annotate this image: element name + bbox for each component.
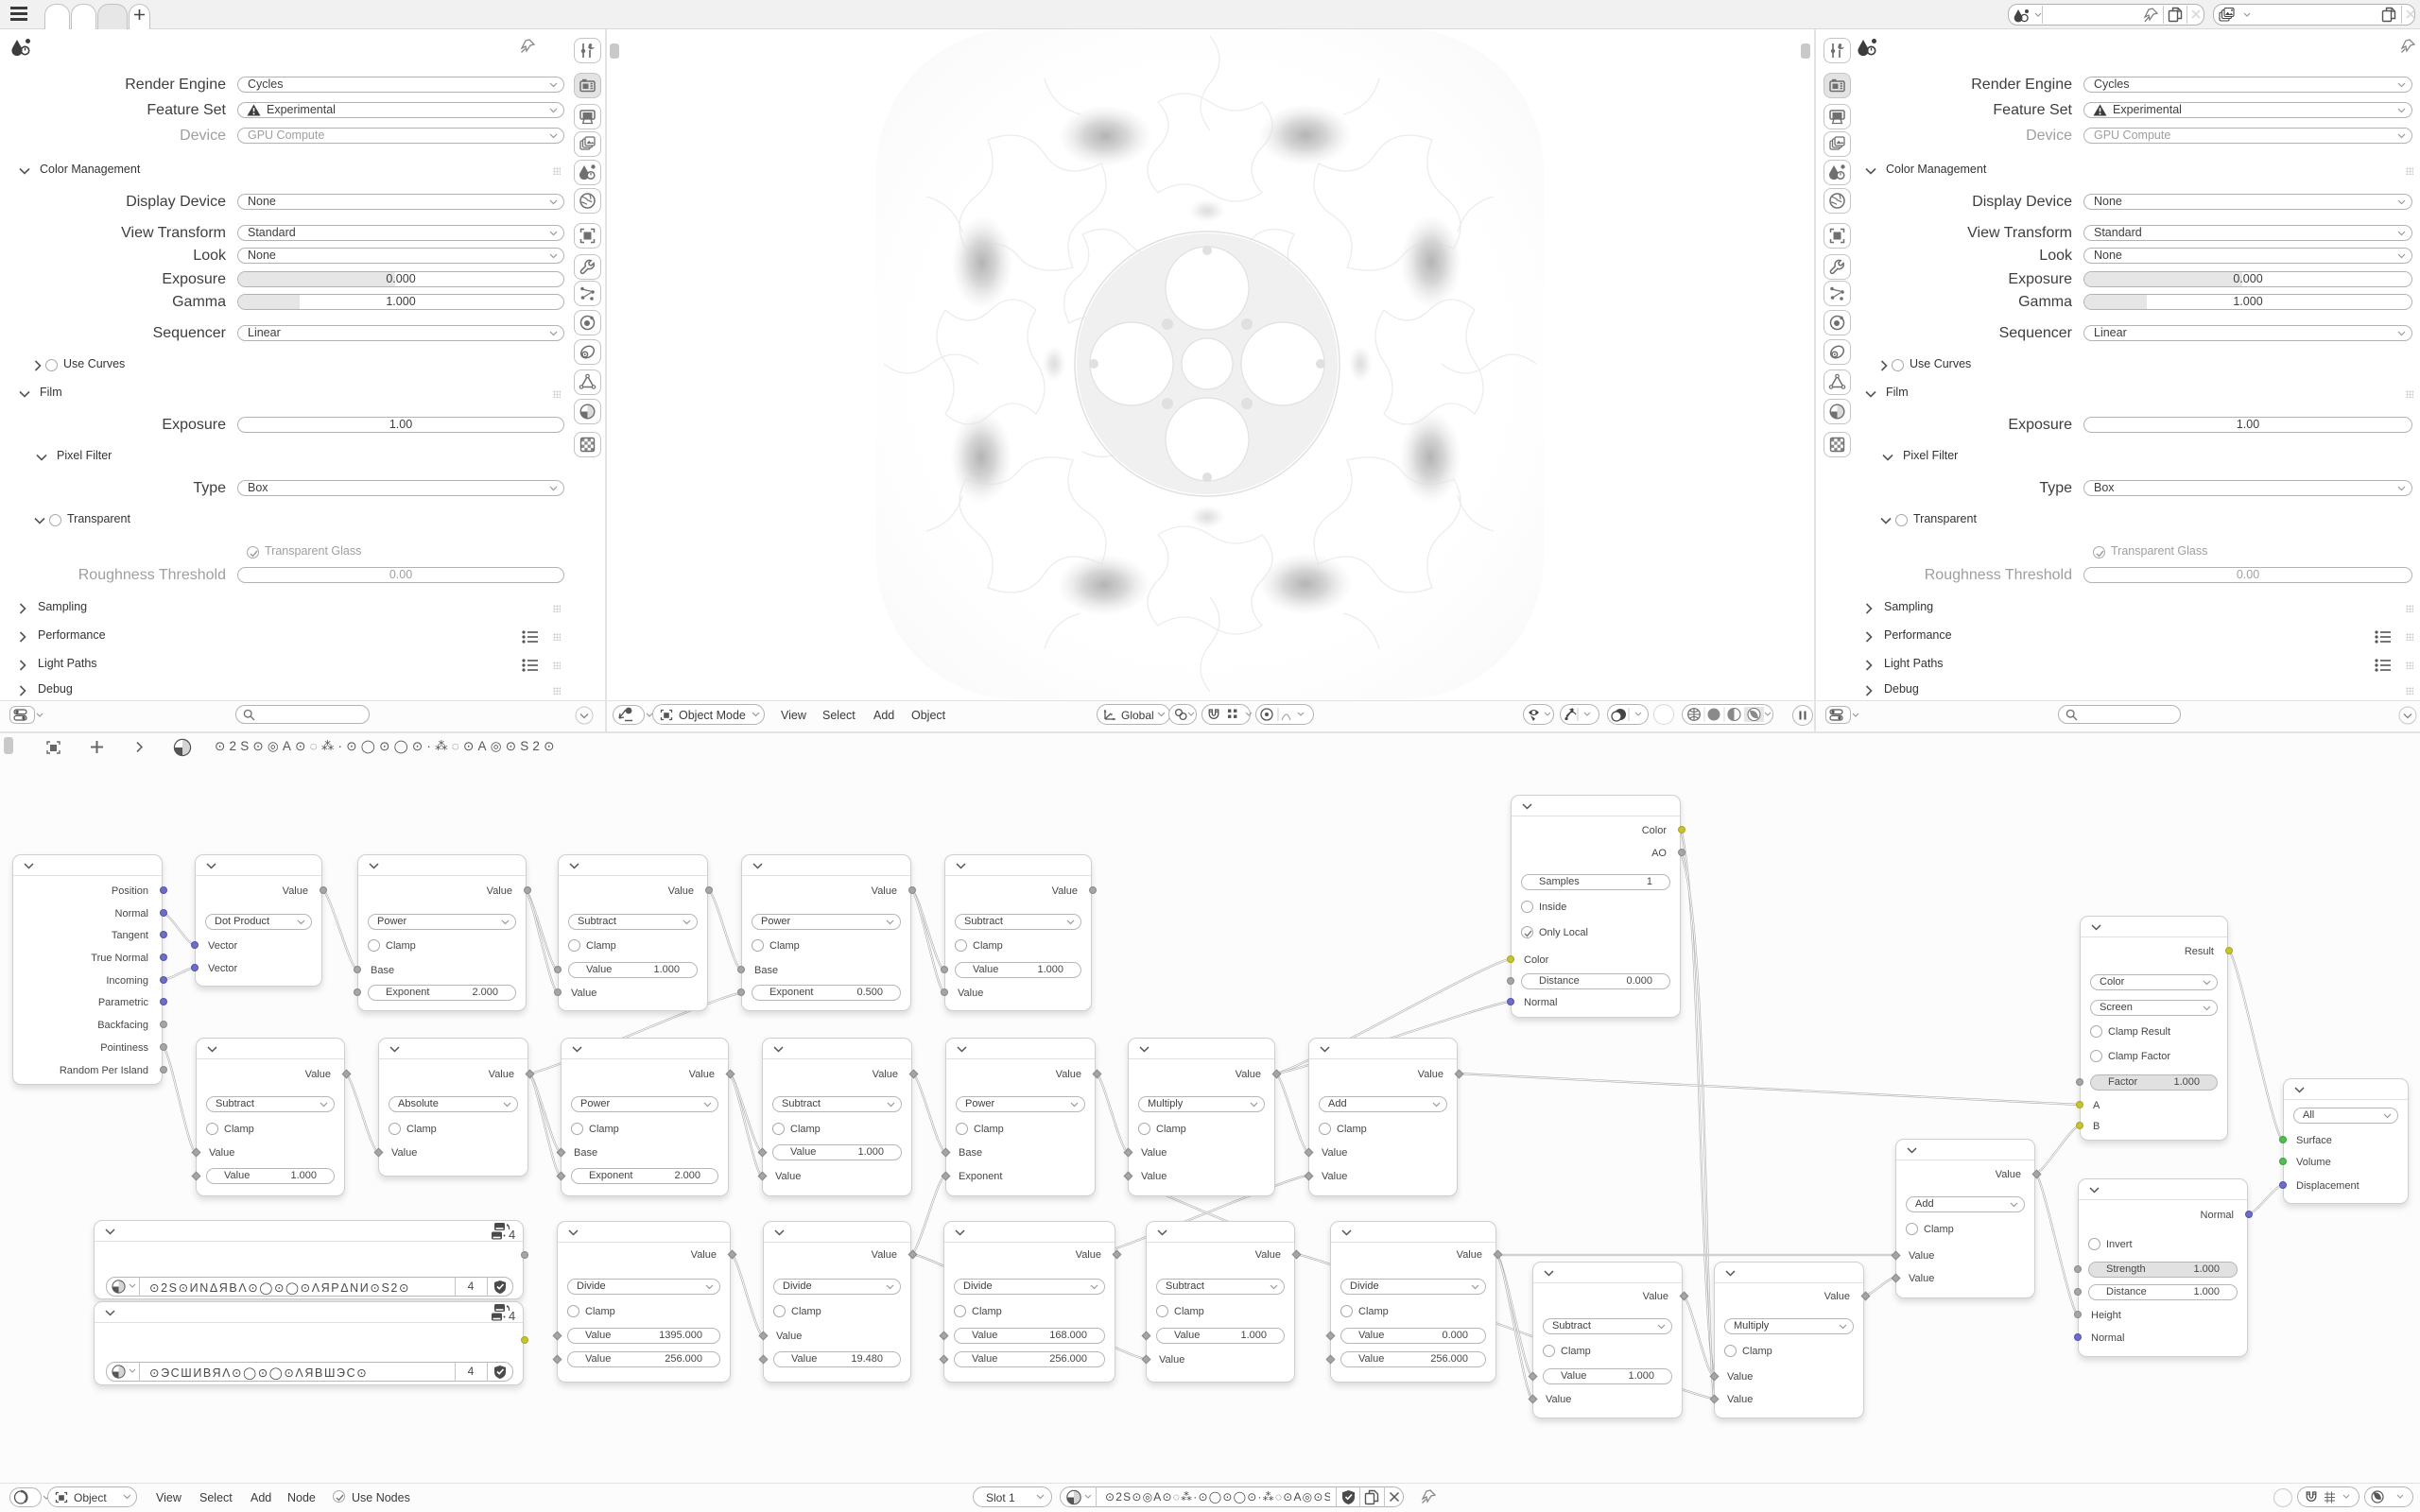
svg-text:4: 4 — [509, 1228, 515, 1241]
svg-text:4: 4 — [509, 1309, 515, 1322]
